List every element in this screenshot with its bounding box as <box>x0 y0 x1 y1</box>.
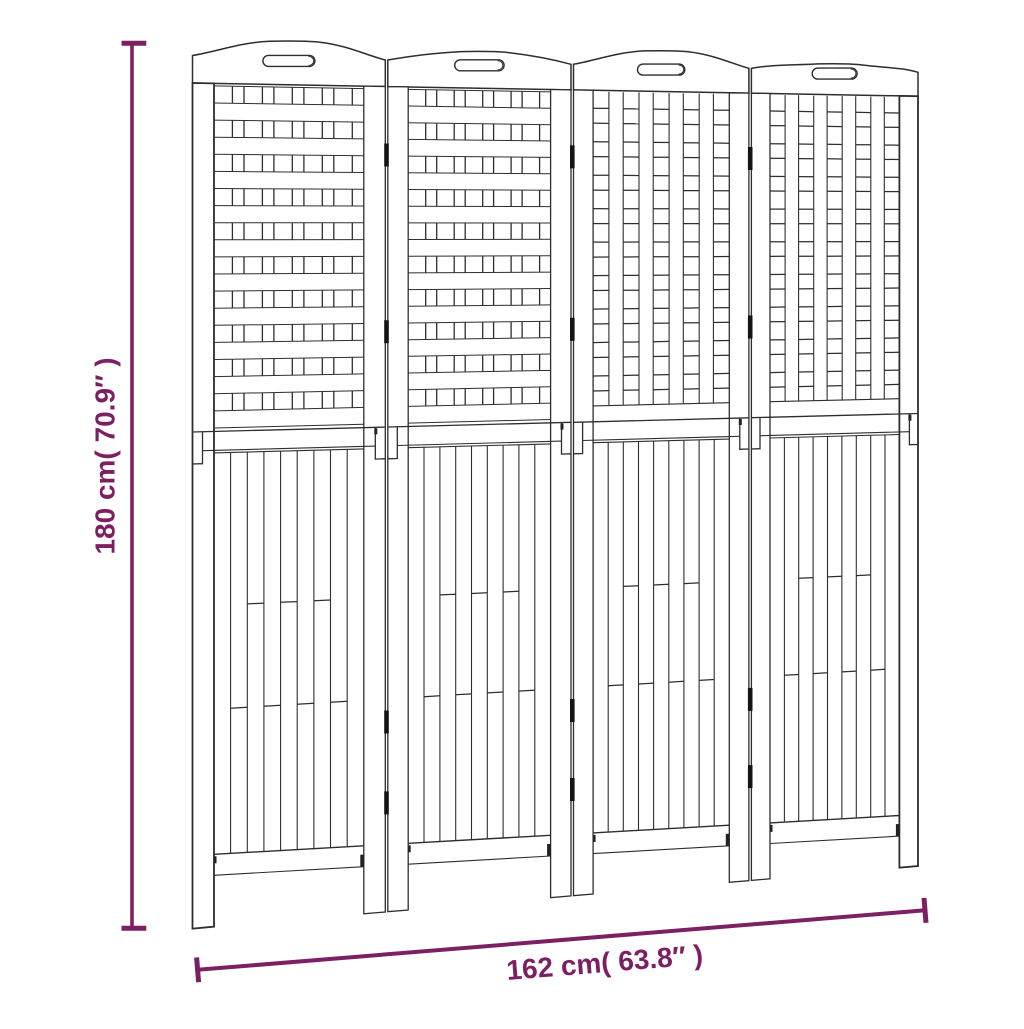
svg-text:180 cm( 70.9″ ): 180 cm( 70.9″ ) <box>90 357 121 554</box>
